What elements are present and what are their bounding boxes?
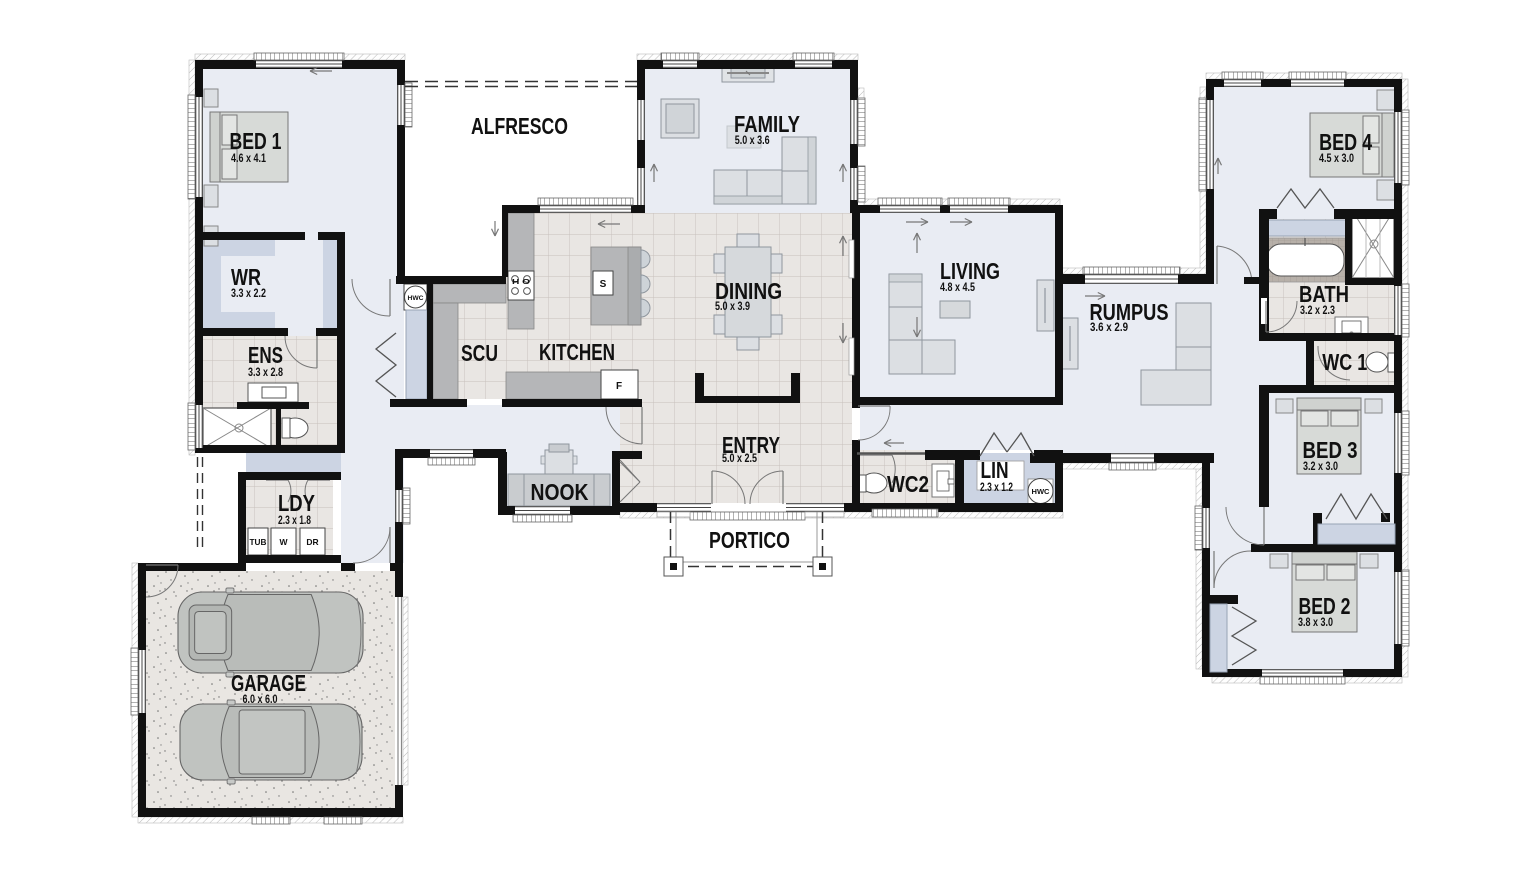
svg-text:BED 3: BED 3 xyxy=(1303,437,1358,463)
svg-text:3.2 x 2.3: 3.2 x 2.3 xyxy=(1300,305,1335,317)
svg-text:HWC: HWC xyxy=(408,295,424,302)
svg-text:H O: H O xyxy=(512,277,530,286)
svg-text:S: S xyxy=(600,279,607,290)
svg-text:WR: WR xyxy=(231,264,261,290)
svg-text:ENS: ENS xyxy=(248,342,283,368)
svg-text:BED 4: BED 4 xyxy=(1319,129,1372,155)
svg-text:3.8 x 3.0: 3.8 x 3.0 xyxy=(1298,617,1333,629)
svg-text:SCU: SCU xyxy=(461,340,498,366)
svg-text:3.6 x 2.9: 3.6 x 2.9 xyxy=(1090,322,1128,334)
svg-text:LIVING: LIVING xyxy=(940,258,1000,284)
svg-text:PORTICO: PORTICO xyxy=(709,527,790,553)
svg-text:3.3 x 2.2: 3.3 x 2.2 xyxy=(231,288,266,300)
svg-text:DR: DR xyxy=(306,537,318,547)
svg-text:6.0 x 6.0: 6.0 x 6.0 xyxy=(243,694,278,706)
svg-text:5.0 x 3.6: 5.0 x 3.6 xyxy=(735,135,770,147)
svg-text:3.3 x 2.8: 3.3 x 2.8 xyxy=(248,367,283,379)
svg-text:KITCHEN: KITCHEN xyxy=(539,339,615,365)
svg-text:TUB: TUB xyxy=(250,537,267,547)
svg-text:FAMILY: FAMILY xyxy=(734,111,800,137)
svg-text:4.5 x 3.0: 4.5 x 3.0 xyxy=(1319,153,1354,165)
svg-text:WC 1: WC 1 xyxy=(1322,349,1367,375)
svg-text:BATH: BATH xyxy=(1299,281,1349,307)
svg-text:BED 1: BED 1 xyxy=(230,128,282,154)
svg-text:F: F xyxy=(616,381,622,392)
svg-text:4.8 x 4.5: 4.8 x 4.5 xyxy=(940,282,975,294)
svg-text:4.6 x 4.1: 4.6 x 4.1 xyxy=(231,153,266,165)
svg-text:LDY: LDY xyxy=(278,490,315,516)
svg-text:HWC: HWC xyxy=(1032,489,1050,496)
svg-text:2.3 x 1.2: 2.3 x 1.2 xyxy=(980,482,1013,494)
svg-text:5.0 x 2.5: 5.0 x 2.5 xyxy=(722,453,757,465)
svg-text:GARAGE: GARAGE xyxy=(231,670,306,696)
svg-text:WC2: WC2 xyxy=(887,471,929,497)
svg-text:2.3 x 1.8: 2.3 x 1.8 xyxy=(278,515,311,527)
svg-text:3.2 x 3.0: 3.2 x 3.0 xyxy=(1303,461,1338,473)
svg-text:W: W xyxy=(279,537,288,547)
svg-text:NOOK: NOOK xyxy=(531,479,589,505)
svg-text:ALFRESCO: ALFRESCO xyxy=(471,113,568,139)
svg-text:5.0 x 3.9: 5.0 x 3.9 xyxy=(715,301,750,313)
svg-text:LIN: LIN xyxy=(981,457,1009,483)
svg-text:BED 2: BED 2 xyxy=(1299,593,1351,619)
